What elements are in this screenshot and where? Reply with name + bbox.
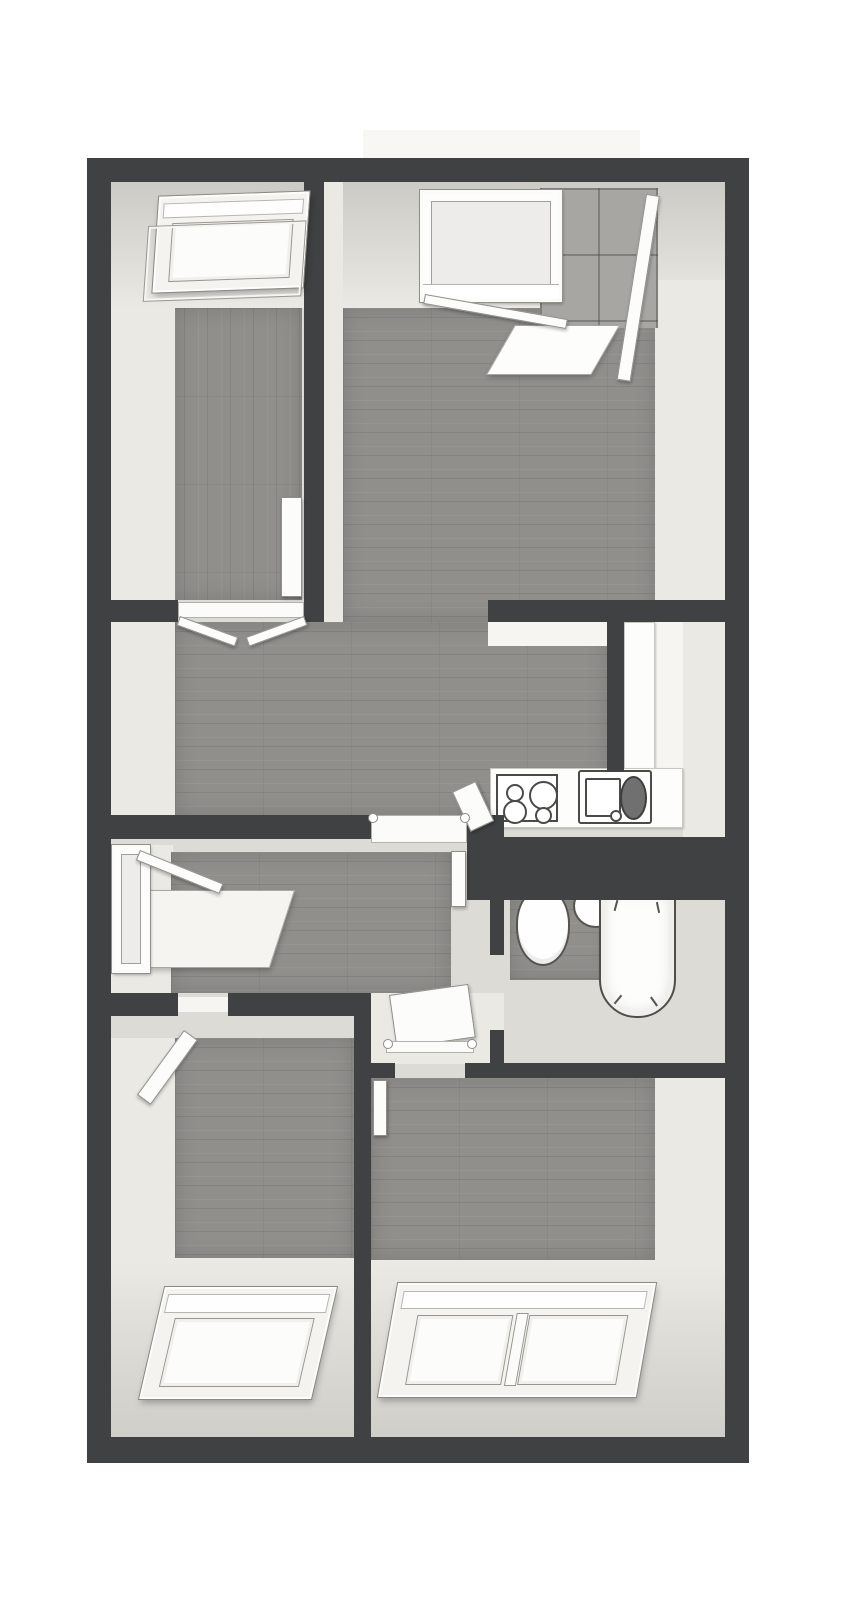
wall-bedroom-br-north-a <box>371 1063 395 1078</box>
nook-door-threshold <box>386 1041 474 1053</box>
outer-wall-bottom <box>87 1437 749 1463</box>
sink-drainer <box>620 776 647 820</box>
sink-faucet <box>610 810 622 822</box>
wall-below-bedroom-tl <box>87 600 178 622</box>
bedroom-br-roof-window <box>378 1283 656 1397</box>
bedroom-tl-roof-window <box>152 191 309 292</box>
bedroom-tl-door-threshold <box>178 602 304 618</box>
wall-between-top-rooms <box>304 180 324 622</box>
bathtub-detail-line <box>614 900 619 911</box>
wall-hallway-south <box>87 815 371 839</box>
bedroom-tl-side-door <box>281 497 302 597</box>
door-hinge-post <box>368 813 378 823</box>
wall-between-bottom-rooms <box>354 993 371 1437</box>
door-hinge-post <box>467 1039 477 1049</box>
wall-bedroom-bl-north-b <box>228 993 354 1016</box>
bedroom-bl-wood-floor <box>175 1038 354 1260</box>
outer-wall-left <box>87 158 111 1463</box>
wall-bedroom-br-north-b <box>465 1063 725 1078</box>
cooktop-burner <box>535 807 552 824</box>
floor-plan-canvas <box>0 0 867 1600</box>
balcony-slab <box>363 130 640 158</box>
roof-window-glass <box>159 1318 314 1387</box>
bathtub <box>599 888 676 1018</box>
outer-wall-right <box>725 158 749 1463</box>
roof-window-head <box>162 198 304 219</box>
wall-kitchen-partition <box>607 622 624 772</box>
kitchen-counter-side <box>624 622 655 774</box>
wall-bathroom-north <box>467 837 725 900</box>
cooktop-burner <box>529 781 558 810</box>
bedroom-bl-north-face <box>111 1016 354 1038</box>
partition-wall-face <box>324 180 343 622</box>
cooktop <box>496 774 558 822</box>
wall-bedroom-bl-north-a <box>87 993 178 1016</box>
roof-window-head <box>164 1294 329 1312</box>
wall-kitchen-north <box>488 600 725 622</box>
bedroom-br-door <box>373 1080 387 1136</box>
kitchen-floor <box>655 622 683 774</box>
bathtub-detail-line <box>656 902 660 913</box>
window-glass <box>431 201 551 291</box>
hallway-end-door <box>451 851 466 907</box>
window-glass <box>121 854 141 964</box>
upper-hall-threshold <box>371 815 467 843</box>
bedroom-br-wood-floor <box>371 1078 655 1260</box>
nook-open-door <box>389 984 476 1049</box>
kitchen-east-wall-face <box>683 600 725 845</box>
hallway-window <box>112 845 150 973</box>
roof-window-head <box>401 1291 648 1310</box>
wall-bathroom-west-a <box>490 900 504 955</box>
outer-wall-top <box>87 158 749 182</box>
kitchen-north-face <box>488 622 623 646</box>
door-hinge-post <box>383 1039 393 1049</box>
door-hinge-post <box>460 813 470 823</box>
bedroom-bl-threshold <box>178 997 228 1012</box>
bathtub-detail-line <box>650 996 658 1006</box>
kitchen-sink <box>578 770 652 824</box>
bathtub-detail-line <box>614 995 623 1005</box>
hallway-upper-west-face <box>111 622 175 815</box>
bedroom-bl-roof-window <box>139 1287 337 1399</box>
living-room-east-wall-face <box>655 280 725 622</box>
wall-bathroom-west-b <box>490 1030 504 1064</box>
roof-window-open-sash <box>144 221 305 300</box>
living-room-window <box>420 190 562 302</box>
roof-window-glass <box>517 1315 628 1385</box>
cooktop-burner <box>503 800 527 824</box>
roof-window-glass <box>405 1315 514 1385</box>
